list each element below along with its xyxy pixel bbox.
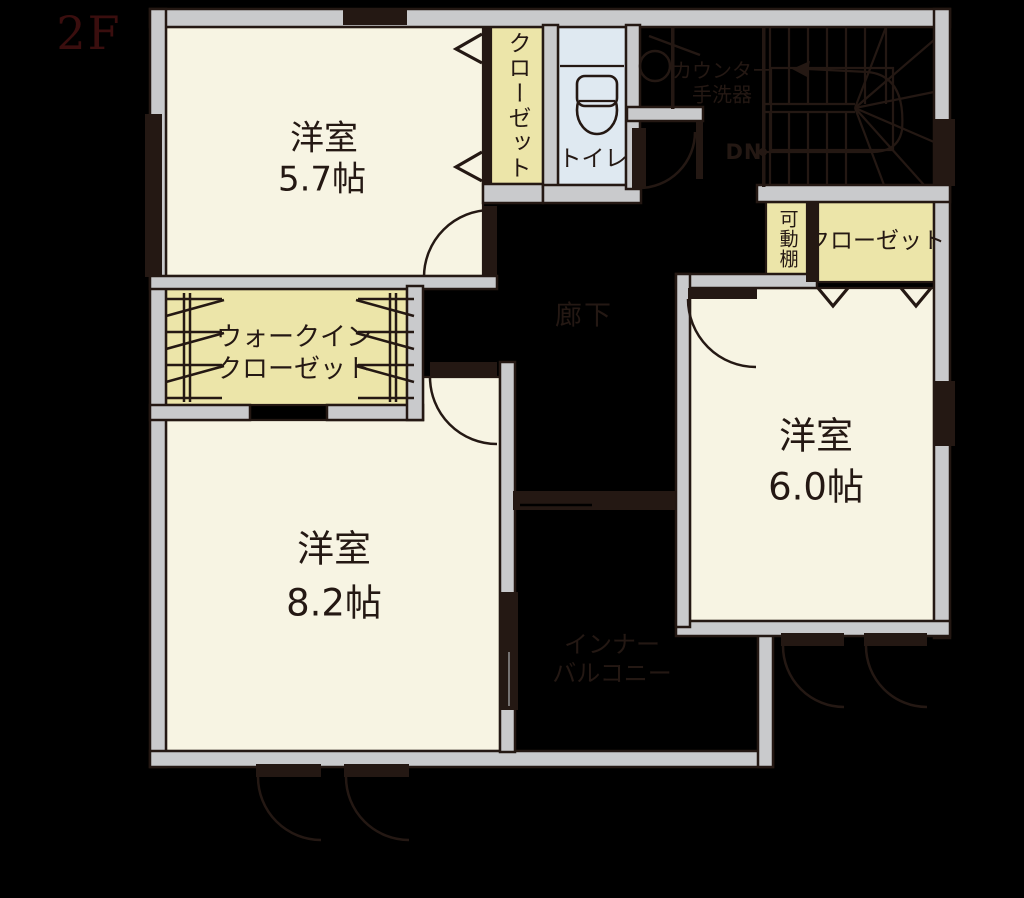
wall-right [934,9,950,638]
window-arc-room82-1 [258,777,321,840]
wall-stairs-bottom [757,185,950,202]
floor-label: 2F [56,5,121,61]
wall-closet57-left [482,27,491,185]
stairs-icon [759,27,934,185]
stair-direction-arrow [792,61,810,77]
door-leaf-room82 [430,362,497,376]
room-8-2-name: 洋室 [297,526,371,571]
window-top-wall [343,8,407,25]
room-5-7-size: 5.7帖 [278,159,366,200]
hallway-label: 廊下 [555,301,613,334]
wall-wic-bottom-left [150,405,250,420]
wall-counter-bottom [627,107,703,121]
movable-shelf-label: 可動棚 [775,209,798,269]
room-6-0-name: 洋室 [779,413,853,458]
door-leaf-room57 [483,206,497,277]
door-arc-toilet [639,132,695,188]
window-room82-bottom-1 [256,764,321,777]
window-room60-right [933,381,955,446]
wall-room60-top [676,274,817,288]
window-hall-balcony [513,491,676,510]
window-room60-bottom-2 [864,633,927,646]
stair-treads-upper [770,27,886,104]
window-arc-room60-2 [866,646,927,707]
room-5-7-name: 洋室 [290,118,358,159]
wall-wic-right [407,286,423,420]
stair-winder-fan [855,27,934,185]
stairs-dn-label: DN [725,140,762,166]
wall-bottom [150,751,773,767]
wall-balcony-right [758,627,773,767]
window-arc-room82-2 [346,777,409,840]
window-stairs-right [933,119,955,186]
floor-plan-2f: 2F 洋室 5.7帖 クローゼット トイレ カウンター 手洗器 DN 可動棚 ク… [0,0,1024,898]
wall-toilet-left [543,25,558,187]
inner-balcony-label: インナー バルコニー [552,631,672,690]
closet-5-7-label: クローゼット [503,31,531,181]
window-room60-bottom-1 [781,633,844,646]
wall-below-closet57 [483,184,543,203]
door-leaf-toilet [632,128,646,188]
door-leaf-room60 [688,288,757,299]
wall-hall-right [676,274,690,627]
toilet-label: トイレ [559,145,628,173]
wall-stub-landing [696,121,703,179]
window-arc-room60-1 [783,646,844,707]
room-8-2-size: 8.2帖 [286,580,382,625]
room-6-0-size: 6.0帖 [768,464,864,509]
window-room82-bottom-2 [344,764,409,777]
wall-room57-bottom [150,276,497,289]
counter-basin-label: カウンター 手洗器 [672,59,772,108]
walk-in-closet-label: ウォークイン クローゼット [216,322,372,385]
window-room57-left [145,114,162,277]
stair-treads-lower [770,112,846,185]
closet-6-0-label: クローゼット [807,227,945,255]
